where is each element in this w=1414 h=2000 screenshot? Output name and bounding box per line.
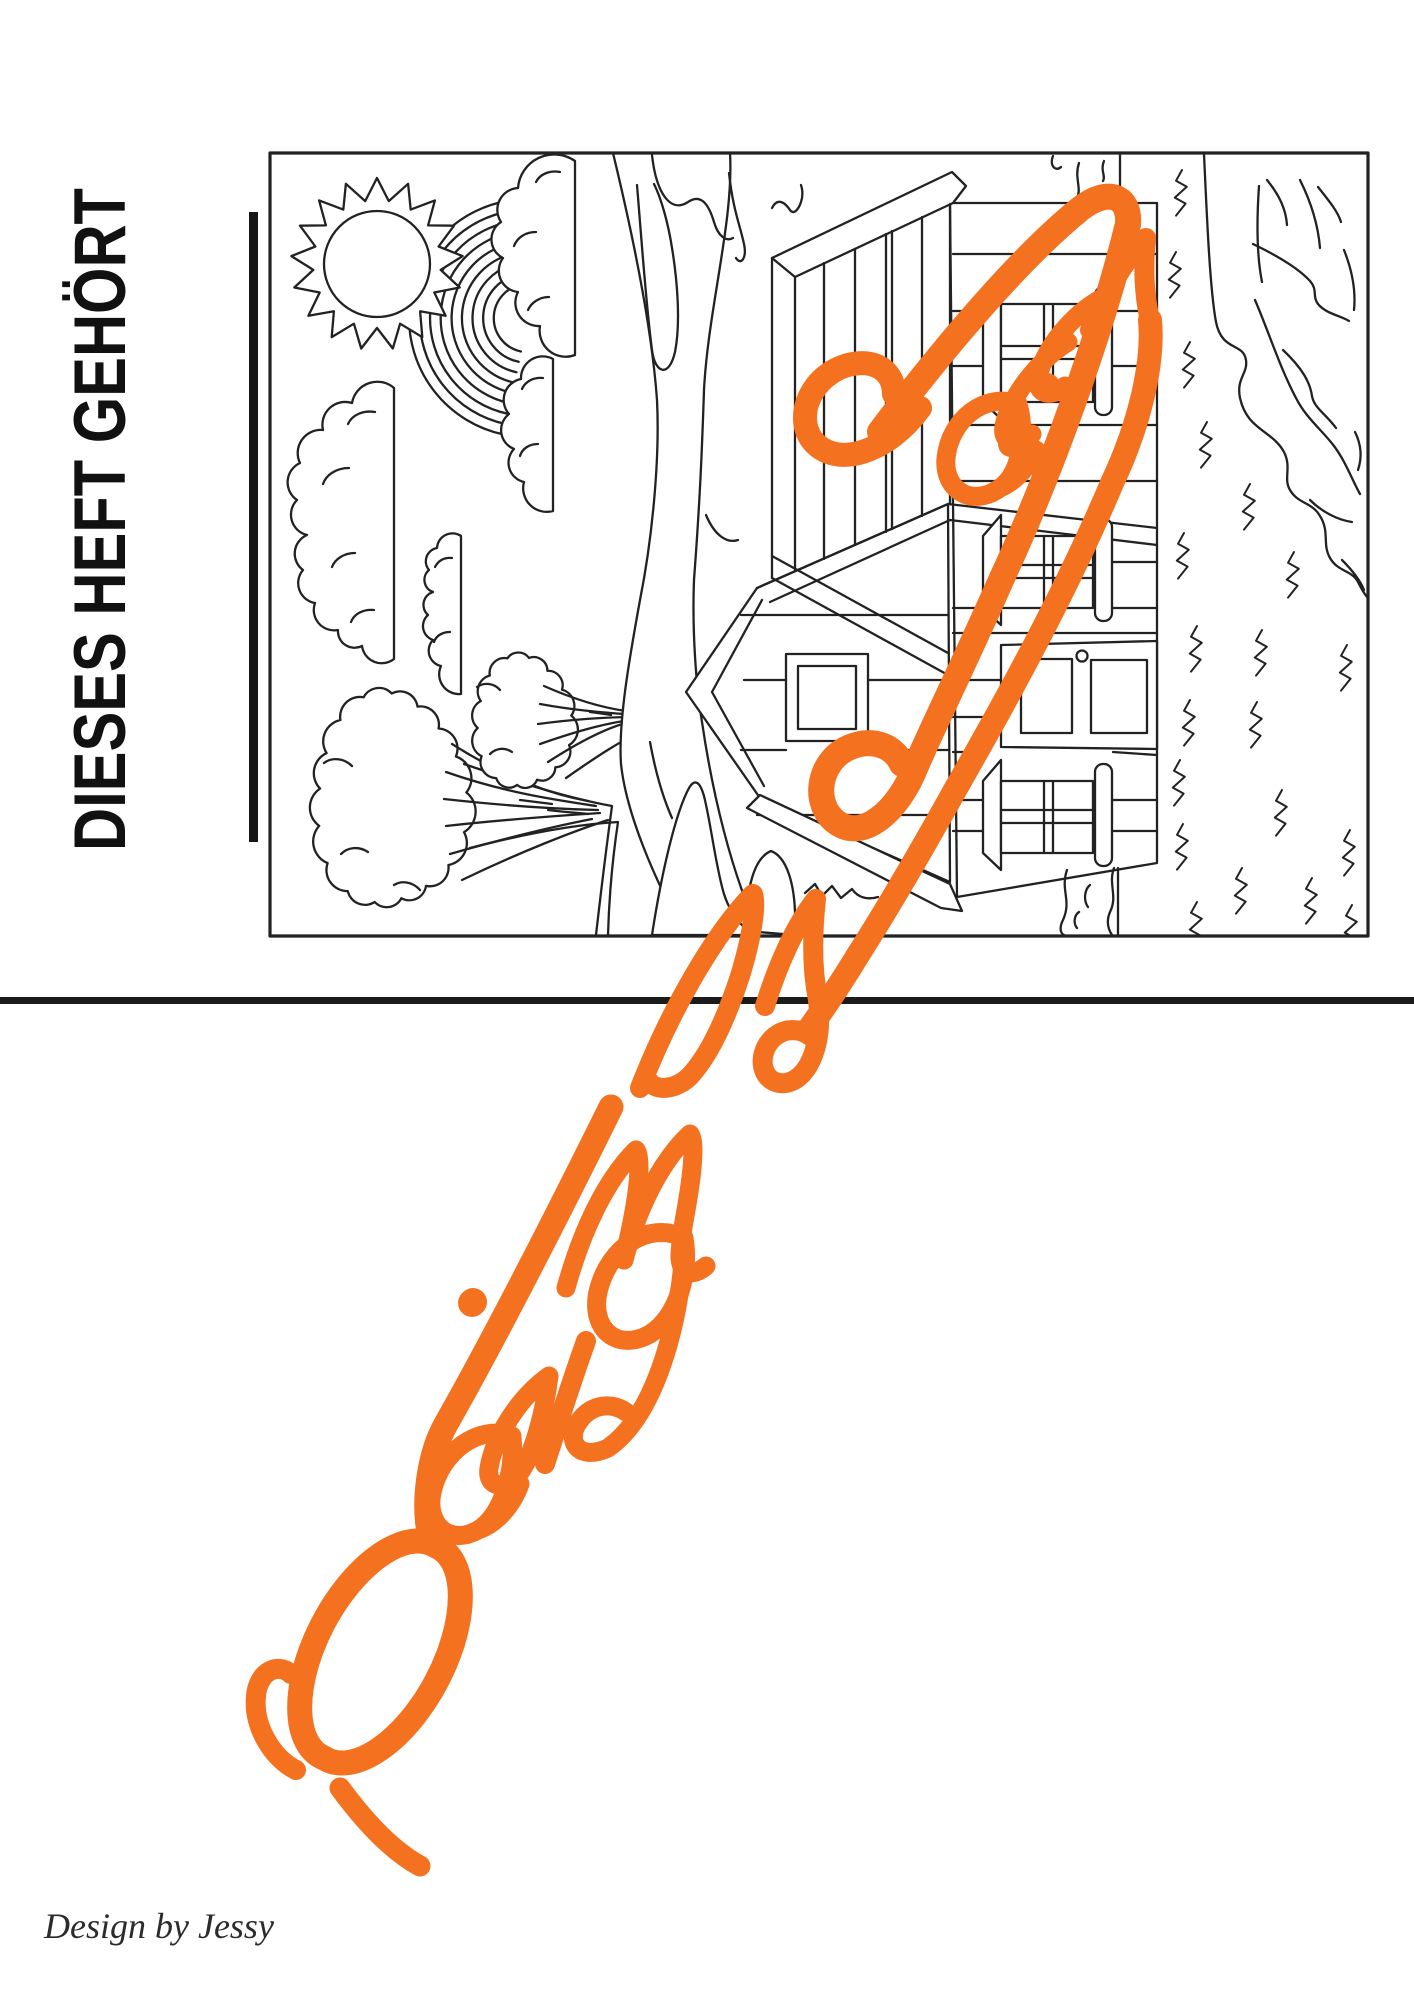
svg-text:Design by Jessy: Design by Jessy [43,1906,274,1946]
svg-text:DIESES HEFT GEHÖRT: DIESES HEFT GEHÖRT [60,188,141,851]
